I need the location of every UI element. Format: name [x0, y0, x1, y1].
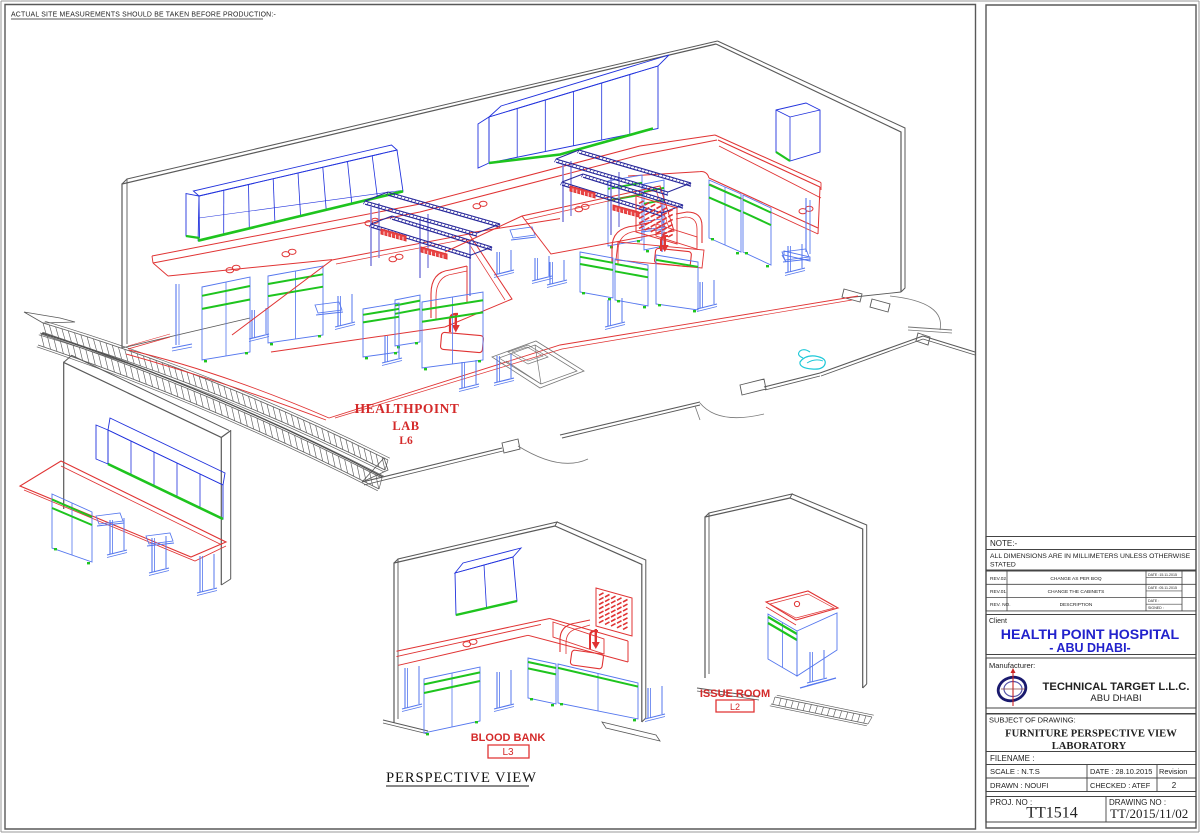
svg-text:ALL DIMENSIONS ARE IN MILLIMET: ALL DIMENSIONS ARE IN MILLIMETERS UNLESS…: [990, 553, 1191, 560]
svg-text:REV.02.: REV.02.: [990, 576, 1007, 582]
svg-text:LABORATORY: LABORATORY: [1052, 741, 1127, 752]
svg-text:PERSPECTIVE VIEW: PERSPECTIVE VIEW: [386, 770, 537, 786]
svg-text:ACTUAL SITE MEASUREMENTS SHOUL: ACTUAL SITE MEASUREMENTS SHOULD BE TAKEN…: [11, 12, 276, 19]
svg-text:DRAWN : NOUFI: DRAWN : NOUFI: [990, 781, 1048, 790]
svg-text:SUBJECT OF DRAWING:: SUBJECT OF DRAWING:: [989, 716, 1076, 725]
svg-text:ISSUE ROOM: ISSUE ROOM: [700, 688, 770, 700]
svg-text:DESCRIPTION: DESCRIPTION: [1060, 602, 1093, 608]
svg-text:FILENAME :: FILENAME :: [990, 754, 1034, 763]
svg-text:SCALE : N.T.S: SCALE : N.T.S: [990, 767, 1040, 776]
svg-text:Manufacturer:: Manufacturer:: [989, 661, 1035, 670]
svg-text:CHANGE AS PER BOQ: CHANGE AS PER BOQ: [1050, 576, 1101, 582]
svg-text:BLOOD BANK: BLOOD BANK: [471, 732, 546, 744]
svg-text:CHANGE THE CABINETS: CHANGE THE CABINETS: [1048, 589, 1105, 595]
svg-text:2: 2: [1172, 781, 1177, 790]
svg-text:L6: L6: [399, 435, 413, 447]
svg-text:DATE :: DATE :: [1148, 599, 1159, 603]
svg-text:FURNITURE PERSPECTIVE VIEW: FURNITURE PERSPECTIVE VIEW: [1005, 729, 1177, 740]
svg-text:- ABU DHABI-: - ABU DHABI-: [1049, 641, 1130, 655]
svg-text:LAB: LAB: [392, 419, 419, 433]
svg-text:HEALTHPOINT: HEALTHPOINT: [355, 401, 460, 416]
svg-text:REV.01.: REV.01.: [990, 589, 1007, 595]
svg-text:TT1514: TT1514: [1026, 805, 1078, 822]
svg-text:REV. NO.: REV. NO.: [990, 602, 1011, 608]
svg-text:TECHNICAL TARGET L.L.C.: TECHNICAL TARGET L.L.C.: [1043, 681, 1190, 693]
svg-text:ABU DHABI: ABU DHABI: [1090, 693, 1141, 704]
svg-text:L2: L2: [730, 702, 740, 712]
svg-text:SIGNED :: SIGNED :: [1148, 606, 1164, 610]
svg-text:STATED: STATED: [990, 562, 1016, 569]
svg-text:NOTE:-: NOTE:-: [990, 539, 1017, 548]
svg-text:Client: Client: [989, 618, 1007, 625]
svg-text:TT/2015/11/02: TT/2015/11/02: [1110, 806, 1188, 821]
svg-text:DATE :15.11.2015: DATE :15.11.2015: [1148, 573, 1177, 577]
svg-text:DATE : 28.10.2015: DATE : 28.10.2015: [1090, 767, 1152, 776]
svg-text:L3: L3: [502, 747, 514, 758]
svg-text:CHECKED : ATEF: CHECKED : ATEF: [1090, 781, 1151, 790]
svg-text:Revision: Revision: [1159, 767, 1187, 776]
svg-text:DATE :05.11.2015: DATE :05.11.2015: [1148, 586, 1177, 590]
